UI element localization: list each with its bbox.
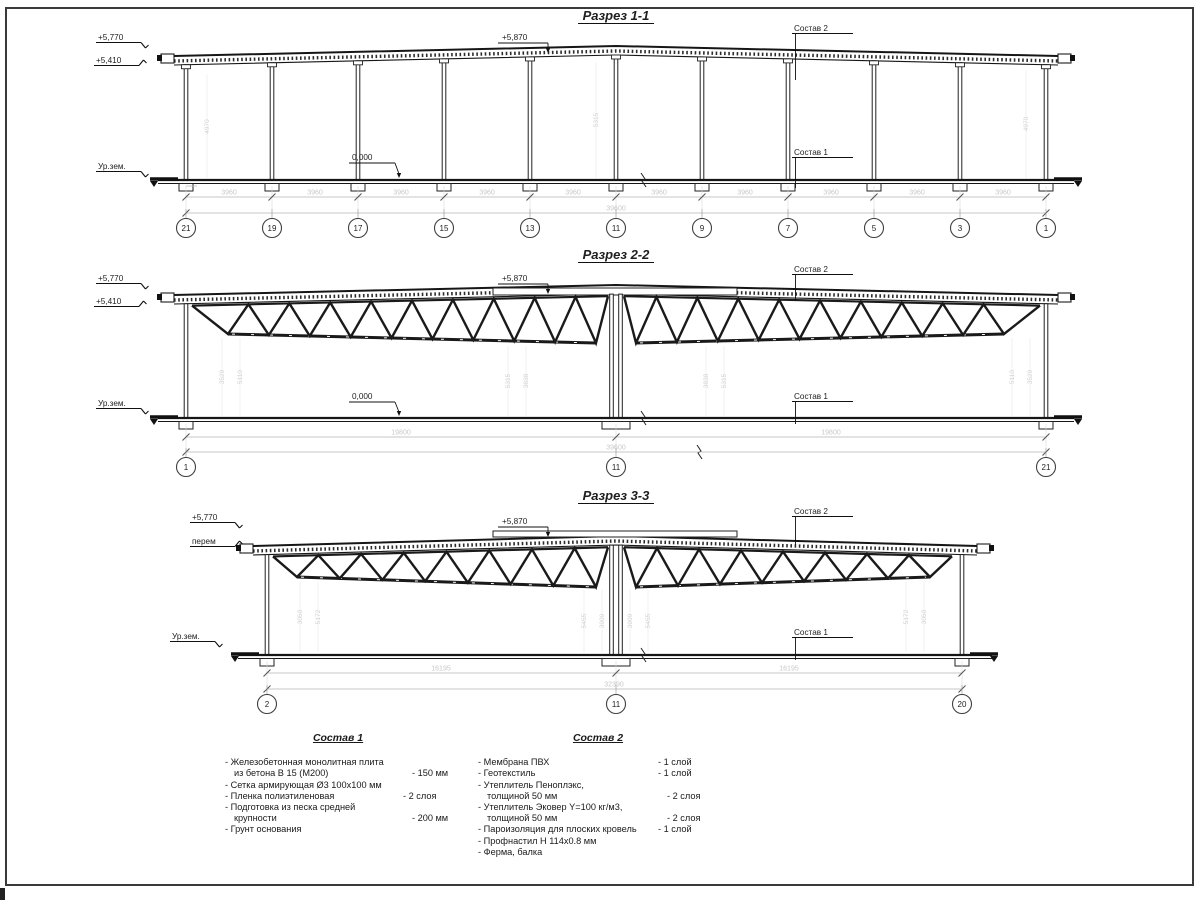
grid-bubble-label: 21 (182, 224, 191, 233)
ground-level-label: Ур.зем. (172, 632, 200, 641)
layer-floor-label: Состав 1 (794, 628, 828, 637)
ground-level-label: Ур.зем. (98, 399, 126, 408)
spec-line-qty: - 1 слой (658, 768, 692, 779)
height-dim-label: 5315 (505, 373, 512, 388)
spec-line-qty: - 1 слой (658, 757, 692, 768)
spec-line-qty: - 2 слоя (403, 791, 436, 802)
spec-line: из бетона В 15 (М200)- 150 мм (225, 768, 463, 779)
grid-bubble-label: 5 (872, 224, 877, 233)
grid-bubble-label: 1 (1044, 224, 1049, 233)
spec-line-text: - Сетка армирующая Ø3 100x100 мм (225, 780, 403, 791)
spec-line-text: - Подготовка из песка средней (225, 802, 403, 813)
height-dim-label: 3050 (297, 609, 304, 624)
layer-roof-label: Состав 2 (794, 507, 828, 516)
height-dim-label: 3050 (921, 609, 928, 624)
level-label: перем (192, 537, 216, 546)
grid-bubble-label: 17 (354, 224, 363, 233)
level-peak-label: +5,870 (502, 33, 528, 42)
section-2-2: Разрез 2-219800198003960011121+5,770+5,4… (94, 247, 1082, 477)
grid-bubble-label: 15 (440, 224, 449, 233)
grid-bubble-label: 1 (184, 463, 189, 472)
spec-line: - Утеплитель Эковер Y=100 кг/м3, (478, 802, 720, 813)
dim-label: 16195 (779, 666, 799, 673)
height-dim-label: 3909 (599, 613, 606, 628)
level-zero-label: 0,000 (352, 153, 373, 162)
spec-line-text: - Грунт основания (225, 824, 403, 835)
grid-bubble-label: 3 (958, 224, 963, 233)
ground-level-label: Ур.зем. (98, 162, 126, 171)
dim-label: 19800 (391, 430, 411, 437)
spec-line-qty: - 2 слоя (667, 791, 700, 802)
level-zero-label: 0,000 (352, 392, 373, 401)
height-dim-label: 5110 (237, 370, 244, 384)
spec-line: - Сетка армирующая Ø3 100x100 мм (225, 780, 463, 791)
grid-bubble-label: 21 (1042, 463, 1051, 472)
spec-line: - Профнастил Н 114x0.8 мм (478, 836, 720, 847)
spec-line-qty: - 200 мм (412, 813, 448, 824)
dim-label: 3960 (737, 190, 753, 197)
spec-line-text: толщиной 50 мм (478, 791, 667, 802)
drawing-sheet: Разрез 1-1396039603960396039603960396039… (0, 0, 1200, 900)
spec-line-text: - Геотекстиль (478, 768, 658, 779)
spec-line: толщиной 50 мм- 2 слоя (478, 813, 720, 824)
grid-bubble-label: 9 (700, 224, 705, 233)
spec-line: - Пароизоляция для плоских кровель- 1 сл… (478, 824, 720, 835)
height-dim-label: 3838 (703, 373, 710, 388)
spec-line-text: - Железобетонная монолитная плита (225, 757, 403, 768)
grid-bubble-label: 2 (265, 700, 270, 709)
spec-line: толщиной 50 мм- 2 слоя (478, 791, 720, 802)
height-dim-label: 4970 (1023, 116, 1030, 131)
spec-line: - Подготовка из песка средней (225, 802, 463, 813)
layer-roof-label: Состав 2 (794, 265, 828, 274)
spec-line-text: крупности (225, 813, 412, 824)
spec-line-text: из бетона В 15 (М200) (225, 768, 412, 779)
dim-label: 3960 (479, 190, 495, 197)
dim-label: 3960 (909, 190, 925, 197)
grid-bubble-label: 20 (958, 700, 967, 709)
section-title: Разрез 1-1 (583, 8, 650, 23)
dim-label: 3960 (307, 190, 323, 197)
spec-line-text: - Мембрана ПВХ (478, 757, 658, 768)
dim-label: 19800 (821, 430, 841, 437)
dim-label: 3960 (221, 190, 237, 197)
spec-list-sostav-1: Состав 1 - Железобетонная монолитная пли… (225, 733, 463, 836)
height-dim-label: 5315 (593, 112, 600, 127)
height-dim-label: 5110 (1009, 370, 1016, 384)
spec-line-text: - Ферма, балка (478, 847, 658, 858)
spec-line: крупности- 200 мм (225, 813, 463, 824)
dim-label: 3960 (651, 190, 667, 197)
dim-label: 32390 (604, 682, 624, 689)
spec-line-text: - Пароизоляция для плоских кровель (478, 824, 658, 835)
spec-line-text: - Утеплитель Эковер Y=100 кг/м3, (478, 802, 658, 813)
height-dim-label: 3838 (523, 373, 530, 388)
spec-line: - Пленка полиэтиленовая- 2 слоя (225, 791, 463, 802)
height-dim-label: 5172 (315, 609, 322, 624)
level-label: +5,410 (96, 56, 122, 65)
layer-floor-label: Состав 1 (794, 392, 828, 401)
spec-line: - Геотекстиль- 1 слой (478, 768, 720, 779)
section-3-3: Разрез 3-316195161953239021120+5,770пере… (170, 488, 998, 714)
height-dim-label: 3909 (627, 613, 634, 628)
spec-list-title: Состав 1 (253, 733, 423, 744)
grid-bubble-label: 7 (786, 224, 791, 233)
grid-bubble-label: 11 (612, 463, 621, 472)
spec-list-rows: - Мембрана ПВХ- 1 слой- Геотекстиль- 1 с… (478, 757, 720, 858)
spec-line: - Железобетонная монолитная плита (225, 757, 463, 768)
grid-bubble-label: 11 (612, 700, 621, 709)
section-title: Разрез 3-3 (583, 488, 651, 503)
spec-line: - Ферма, балка (478, 847, 720, 858)
grid-bubble-label: 19 (268, 224, 277, 233)
spec-list-title: Состав 2 (513, 733, 683, 744)
section-title: Разрез 2-2 (583, 247, 651, 262)
grid-bubble-label: 11 (612, 224, 621, 233)
dim-label: 3960 (823, 190, 839, 197)
height-dim-label: 5172 (903, 609, 910, 624)
spec-line-qty: - 1 слой (658, 824, 692, 835)
spec-line-text: - Утеплитель Пеноплэкс, (478, 780, 658, 791)
spec-line: - Утеплитель Пеноплэкс, (478, 780, 720, 791)
level-peak-label: +5,870 (502, 274, 528, 283)
level-label: +5,770 (98, 274, 124, 283)
level-peak-label: +5,870 (502, 517, 528, 526)
grid-bubble-label: 13 (526, 224, 535, 233)
layer-floor-label: Состав 1 (794, 148, 828, 157)
dim-label: 16195 (431, 666, 451, 673)
height-dim-label: 3529 (219, 369, 226, 384)
dim-label: 3960 (393, 190, 409, 197)
height-dim-label: 5455 (581, 613, 588, 628)
spec-line: - Мембрана ПВХ- 1 слой (478, 757, 720, 768)
spec-line-text: - Профнастил Н 114x0.8 мм (478, 836, 658, 847)
level-label: +5,770 (192, 513, 218, 522)
spec-list-rows: - Железобетонная монолитная плитаиз бето… (225, 757, 463, 835)
height-dim-label: 3529 (1027, 369, 1034, 384)
level-label: +5,770 (98, 33, 124, 42)
spec-line-text: - Пленка полиэтиленовая (225, 791, 403, 802)
spec-line-qty: - 2 слоя (667, 813, 700, 824)
section-1-1: Разрез 1-1396039603960396039603960396039… (94, 8, 1082, 238)
layer-roof-label: Состав 2 (794, 24, 828, 33)
height-dim-label: 4970 (204, 119, 211, 134)
spec-list-sostav-2: Состав 2 - Мембрана ПВХ- 1 слой- Геотекс… (478, 733, 720, 858)
spec-line-qty: - 150 мм (412, 768, 448, 779)
spec-line: - Грунт основания (225, 824, 463, 835)
dim-label: 3960 (995, 190, 1011, 197)
dim-label: 3960 (565, 190, 581, 197)
height-dim-label: 5455 (645, 613, 652, 628)
height-dim-label: 5315 (721, 373, 728, 388)
level-label: +5,410 (96, 297, 122, 306)
spec-line-text: толщиной 50 мм (478, 813, 667, 824)
